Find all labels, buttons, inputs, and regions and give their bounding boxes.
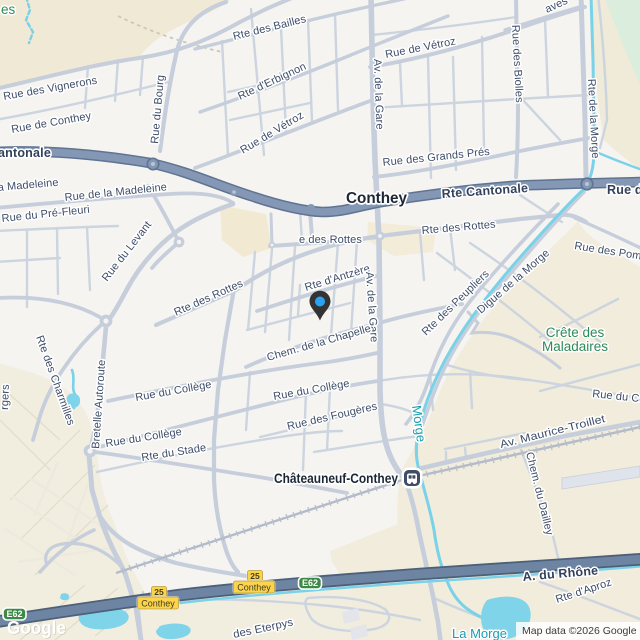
svg-text:La Morge: La Morge	[452, 626, 507, 640]
svg-text:Conthey: Conthey	[346, 190, 407, 207]
svg-text:Maladaires: Maladaires	[542, 339, 608, 354]
svg-text:Google: Google	[7, 617, 66, 638]
svg-text:e des Rottes: e des Rottes	[299, 234, 362, 246]
svg-text:Rue d: Rue d	[607, 183, 640, 197]
svg-text:antonale: antonale	[0, 146, 51, 160]
svg-text:Crête des: Crête des	[546, 325, 605, 340]
svg-text:Map data ©2026 Google: Map data ©2026 Google	[522, 625, 637, 637]
svg-text:25: 25	[154, 587, 164, 597]
svg-text:es: es	[1, 2, 16, 17]
svg-text:25: 25	[250, 571, 260, 581]
svg-text:E62: E62	[302, 578, 318, 588]
svg-text:Conthey: Conthey	[141, 599, 175, 609]
svg-text:Châteauneuf-Conthey: Châteauneuf-Conthey	[274, 471, 398, 486]
svg-text:Conthey: Conthey	[237, 583, 271, 593]
svg-text:rgers: rgers	[0, 384, 12, 410]
svg-text:Av. de la Gare: Av. de la Gare	[371, 59, 385, 130]
